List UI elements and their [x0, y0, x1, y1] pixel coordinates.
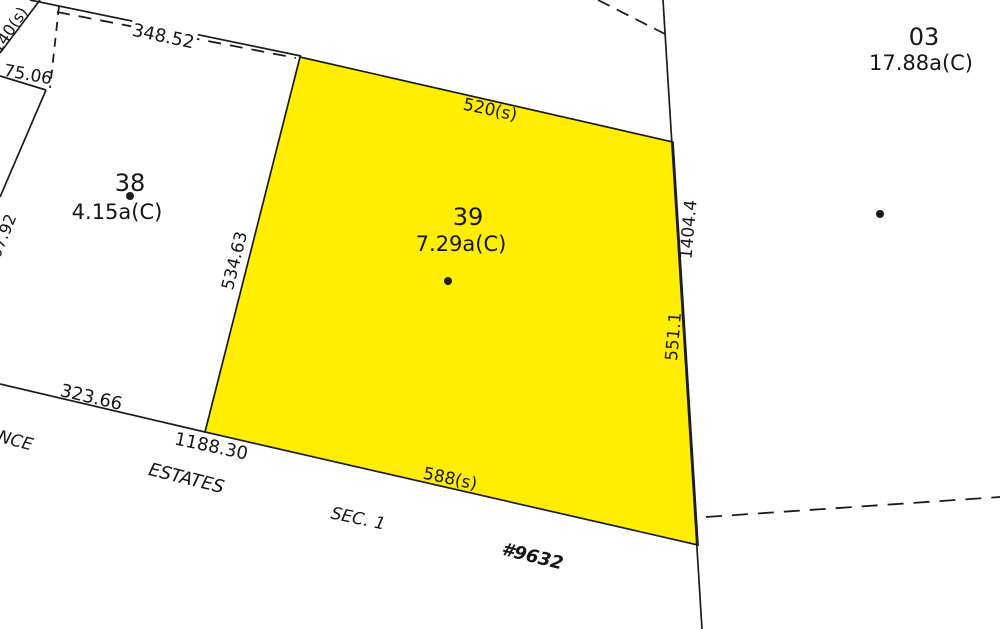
parcel-39-center-dot [444, 277, 452, 285]
parcel-38-area-label: 4.15a(C) [72, 200, 163, 224]
measurement-label: 551.1 [662, 311, 686, 361]
parcel-39-number-label: 39 [453, 203, 484, 231]
plat-map: 384.15a(C)397.29a(C)0317.88a(C)348.5275.… [0, 0, 1000, 629]
parcel-03-area-label: 17.88a(C) [869, 51, 973, 75]
parcel-39-area-label: 7.29a(C) [416, 232, 507, 256]
parcel-03-number-label: 03 [909, 23, 940, 51]
parcel-03-center-dot [876, 210, 884, 218]
parcel-38-number-label: 38 [115, 169, 146, 197]
plat-map-canvas[interactable]: 384.15a(C)397.29a(C)0317.88a(C)348.5275.… [0, 0, 1000, 629]
